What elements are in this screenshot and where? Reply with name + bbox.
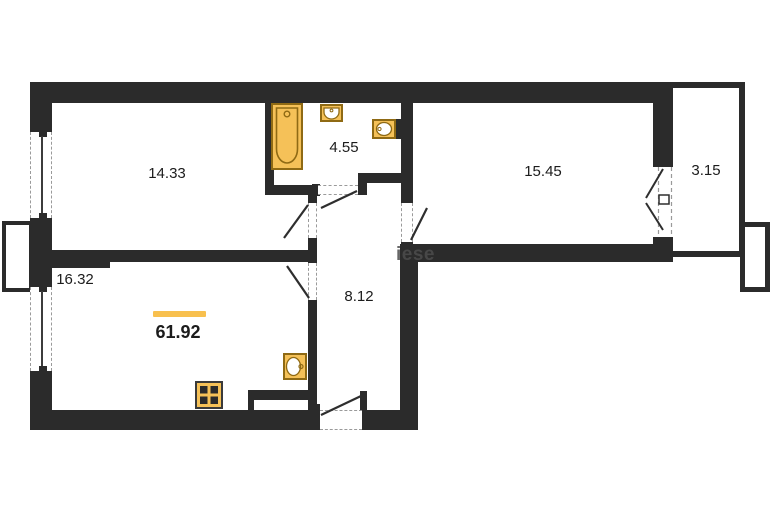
room-label-bedroom: 15.45 bbox=[503, 163, 583, 180]
window-cap bbox=[39, 366, 47, 371]
wall-room-divider bbox=[30, 250, 308, 262]
wall-right-lower bbox=[400, 262, 418, 412]
door-opening-bedroom bbox=[401, 203, 413, 242]
wall-hall-left-a bbox=[308, 195, 317, 203]
wall-niche-top bbox=[248, 390, 310, 400]
floor-plan: 14.33 4.55 15.45 3.15 16.32 8.12 61.92 i… bbox=[0, 0, 770, 510]
door-leaf-kitchen bbox=[287, 266, 309, 298]
bathtub-icon bbox=[271, 103, 303, 170]
door-opening-entrance bbox=[320, 410, 362, 430]
stove-icon bbox=[195, 381, 223, 409]
door-leaf-bedroom bbox=[411, 208, 427, 240]
wall-room-divider-notch bbox=[30, 262, 110, 268]
total-area-label: 61.92 bbox=[128, 322, 228, 343]
wall-top bbox=[30, 82, 673, 103]
door-opening-bathroom bbox=[318, 185, 358, 195]
window-kitchen bbox=[30, 287, 52, 371]
total-area-accent-bar bbox=[153, 311, 206, 317]
door-opening-living bbox=[308, 203, 317, 238]
sink-icon bbox=[283, 353, 307, 380]
wall-bedroom-bottom bbox=[400, 244, 673, 262]
watermark: iese bbox=[396, 244, 435, 266]
wall-bathroom-door-post bbox=[358, 173, 367, 195]
wall-right-upper bbox=[653, 82, 673, 167]
wall-niche-stub bbox=[248, 390, 254, 412]
room-label-living: 14.33 bbox=[127, 165, 207, 182]
wall-balcony-bottom bbox=[665, 251, 745, 257]
window-glass-line bbox=[41, 136, 43, 214]
wall-balcony-top bbox=[665, 82, 745, 88]
room-label-kitchen: 16.32 bbox=[35, 271, 115, 288]
window-living bbox=[30, 132, 52, 218]
door-opening-kitchen bbox=[308, 263, 317, 300]
window-cap bbox=[39, 213, 47, 218]
door-leaf-living bbox=[284, 205, 308, 238]
window-glass-line bbox=[41, 291, 43, 367]
room-label-bathroom: 4.55 bbox=[304, 139, 384, 156]
wall-hall-left-b bbox=[308, 238, 317, 263]
room-label-balcony: 3.15 bbox=[666, 162, 746, 179]
sink-icon bbox=[320, 104, 343, 122]
left-protrusion bbox=[2, 221, 33, 292]
wall-bathroom-south-west bbox=[265, 185, 318, 195]
wall-mid-vertical-upper bbox=[401, 103, 413, 203]
room-label-hallway: 8.12 bbox=[319, 288, 399, 305]
sink-icon bbox=[372, 119, 396, 139]
